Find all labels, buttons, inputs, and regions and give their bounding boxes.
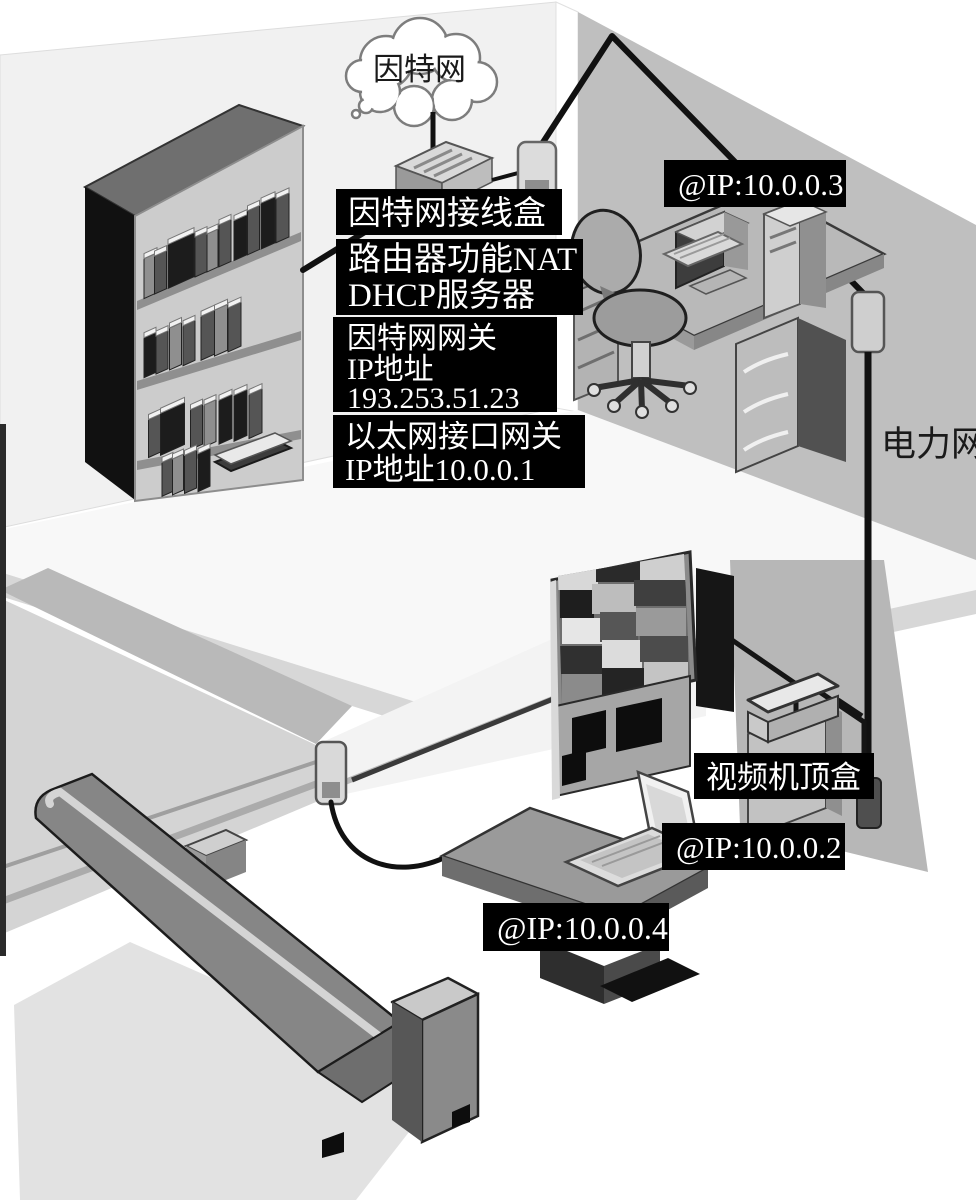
chair-column	[632, 342, 650, 378]
label-ethernet-line2: IP地址10.0.0.1	[345, 452, 535, 487]
label-gateway-line3: 193.253.51.23	[347, 382, 520, 415]
label-router-line2: DHCP服务器	[348, 277, 535, 314]
chair-seat	[594, 290, 686, 346]
label-junction-box: 因特网接线盒	[348, 195, 546, 232]
left-edge-line	[0, 424, 6, 956]
couch	[14, 774, 478, 1200]
label-gateway-line1: 因特网网关	[347, 322, 497, 355]
armrest-side	[392, 1002, 422, 1142]
label-power-network: 电力网	[881, 425, 976, 464]
tv-cabinet-side	[696, 568, 734, 712]
outlet-base	[322, 782, 340, 798]
bookshelf-side	[85, 187, 135, 500]
label-ip-desktop: @IP:10.0.0.3	[678, 167, 843, 202]
isometric-home-network-scene: 因特网	[0, 0, 976, 1200]
wall-outlet-lower-left	[316, 742, 346, 804]
tv-stand-opening	[572, 710, 606, 756]
pedestal-side	[798, 318, 846, 462]
label-ip-settop: @IP:10.0.0.2	[676, 830, 841, 865]
label-ip-laptop: @IP:10.0.0.4	[497, 910, 668, 946]
tv-stand-opening	[562, 750, 586, 786]
label-settop: 视频机顶盒	[706, 760, 861, 795]
wall-outlet-upper	[852, 292, 884, 352]
label-ethernet-line1: 以太网接口网关	[345, 419, 562, 454]
network-diagram: 因特网	[0, 0, 976, 1200]
cloud-label: 因特网	[373, 52, 466, 87]
label-router-line1: 路由器功能NAT	[348, 241, 577, 278]
